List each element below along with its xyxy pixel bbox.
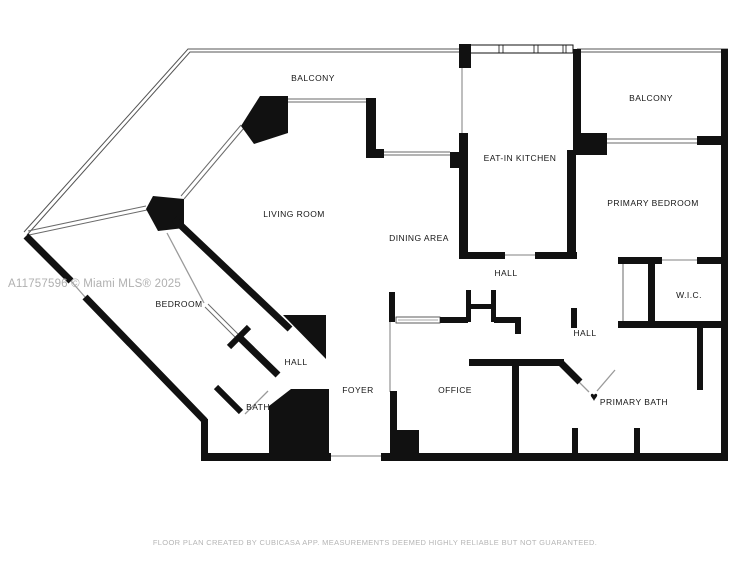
room-label: HALL bbox=[494, 268, 517, 278]
room-label: W.I.C. bbox=[676, 290, 702, 300]
room-label: PRIMARY BATH bbox=[600, 397, 668, 407]
room-label: DINING AREA bbox=[389, 233, 449, 243]
room-label: PRIMARY BEDROOM bbox=[607, 198, 698, 208]
room-label: HALL bbox=[284, 357, 307, 367]
room-label: BALCONY bbox=[629, 93, 673, 103]
room-label: BALCONY bbox=[291, 73, 335, 83]
mls-watermark: A11757596 © Miami MLS® 2025 bbox=[8, 278, 181, 290]
room-label: BATH bbox=[246, 402, 270, 412]
room-label: LIVING ROOM bbox=[263, 209, 325, 219]
floorplan-page: BALCONYEAT-IN KITCHENBALCONYPRIMARY BEDR… bbox=[0, 0, 750, 563]
door-marker-heart-icon: ♥ bbox=[590, 390, 598, 403]
room-label: HALL bbox=[573, 328, 596, 338]
room-label: FOYER bbox=[342, 385, 374, 395]
room-label: OFFICE bbox=[438, 385, 472, 395]
disclaimer-text: FLOOR PLAN CREATED BY CUBICASA APP. MEAS… bbox=[0, 538, 750, 547]
room-label: BEDROOM bbox=[155, 299, 202, 309]
room-label: EAT-IN KITCHEN bbox=[484, 153, 557, 163]
